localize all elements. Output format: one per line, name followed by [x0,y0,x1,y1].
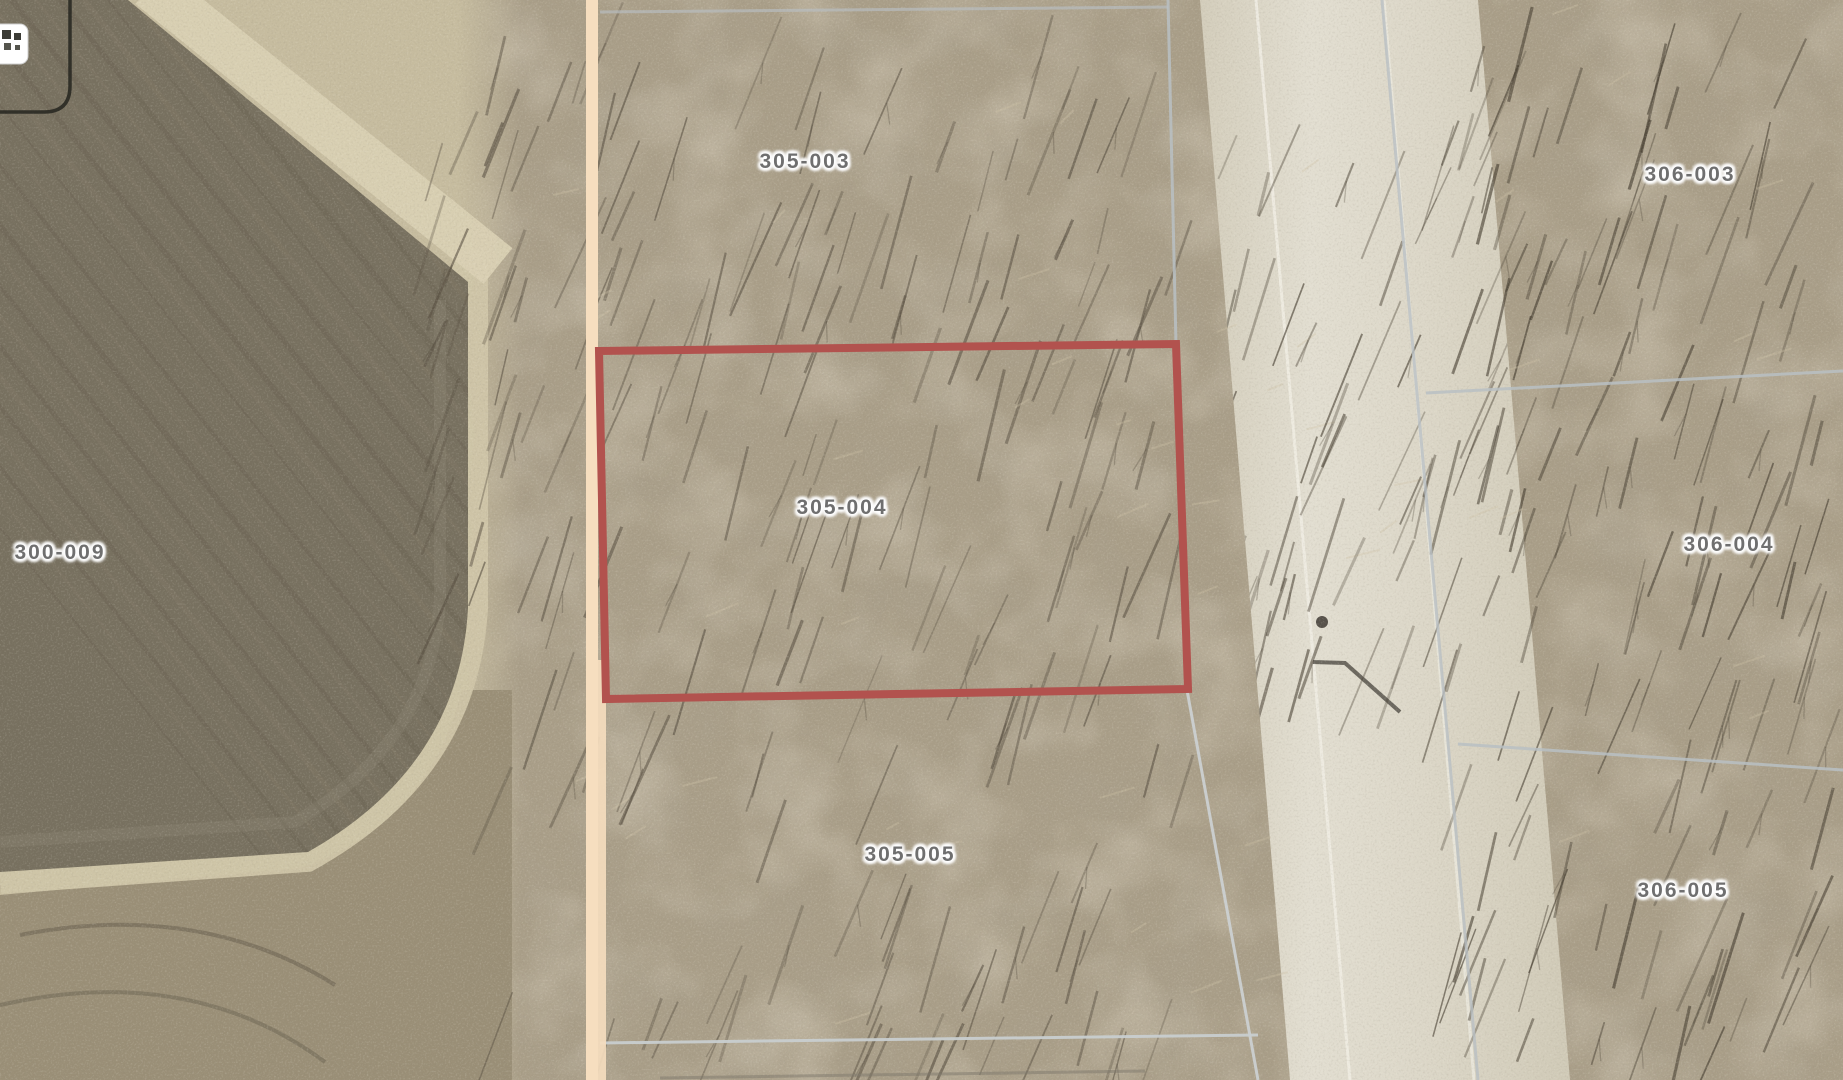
gis-parcel-viewer: 305-003305-004305-005306-003306-004306-0… [0,0,1843,1080]
image-grain [0,0,1843,1080]
aerial-map[interactable] [0,0,1843,1080]
partial-map-tool-icon[interactable] [0,24,28,64]
